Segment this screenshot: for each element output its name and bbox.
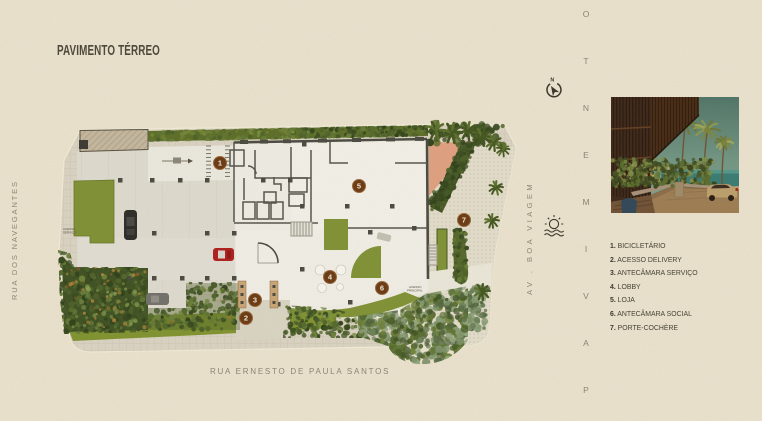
svg-text:N: N [550,77,554,83]
svg-text:SERVIÇO: SERVIÇO [63,231,77,235]
svg-text:5: 5 [357,182,361,191]
svg-text:3: 3 [253,296,257,305]
svg-text:1: 1 [218,159,222,168]
svg-text:2: 2 [244,314,248,323]
svg-text:PRINCIPAL: PRINCIPAL [407,289,423,293]
svg-text:7: 7 [462,216,466,225]
svg-text:6: 6 [380,284,384,293]
